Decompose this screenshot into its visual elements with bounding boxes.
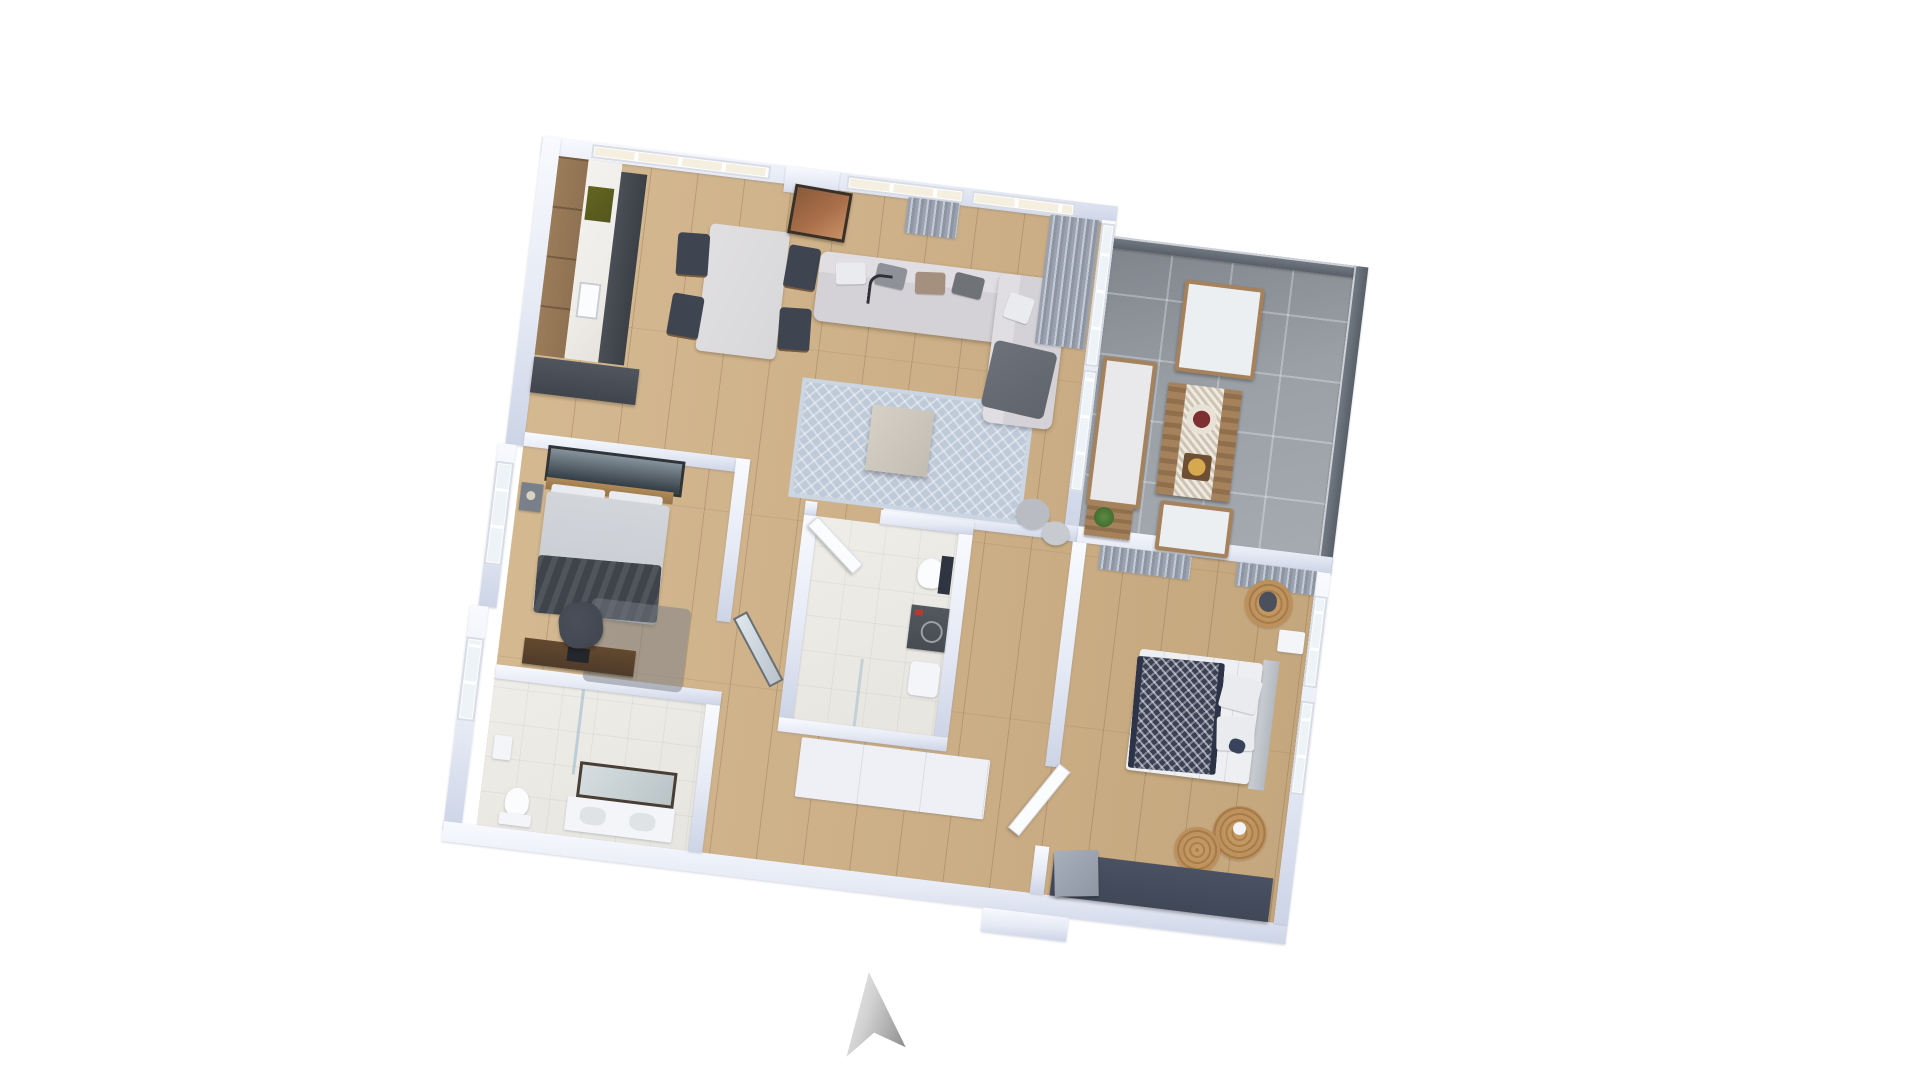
dining-chair — [675, 232, 710, 278]
washing-machine — [907, 604, 950, 652]
cushion — [915, 272, 946, 295]
bathroom-window-glass — [460, 640, 481, 719]
north-arrow — [838, 969, 906, 1057]
laptop — [566, 647, 590, 664]
bathroom2-wall-top-left — [804, 501, 818, 516]
washer-label — [915, 609, 924, 616]
copper-artwork — [787, 184, 853, 243]
arc-floor-lamp — [866, 273, 893, 307]
floor-lamp-ball — [1232, 821, 1246, 835]
food-tray — [1181, 452, 1212, 481]
living-curtain — [904, 197, 960, 239]
cooktop — [584, 186, 614, 223]
table-runner — [1173, 384, 1224, 500]
wall-panel — [492, 735, 513, 761]
wardrobe-door-open — [1054, 850, 1099, 897]
office-chair — [557, 600, 605, 650]
sink-basin — [579, 806, 607, 827]
outdoor-armchair — [1154, 500, 1234, 559]
outdoor-coffee-table — [1155, 382, 1242, 502]
kitchen-sink — [575, 282, 601, 320]
sink-basin — [628, 812, 656, 833]
navy-checked-throw — [1128, 656, 1225, 775]
basin — [907, 661, 941, 698]
nightstand — [1277, 629, 1305, 654]
bag — [1258, 591, 1278, 613]
dining-chair — [777, 307, 812, 353]
coffee-table — [865, 404, 935, 477]
bedroom-window-glass — [487, 464, 511, 563]
washer-door — [919, 620, 944, 645]
floorplan-canvas — [0, 0, 1920, 1067]
bathroom-window-frame — [456, 636, 484, 722]
cushion — [836, 262, 866, 285]
apartment-3d-plan — [408, 130, 1431, 979]
outdoor-daybed — [1174, 279, 1265, 380]
